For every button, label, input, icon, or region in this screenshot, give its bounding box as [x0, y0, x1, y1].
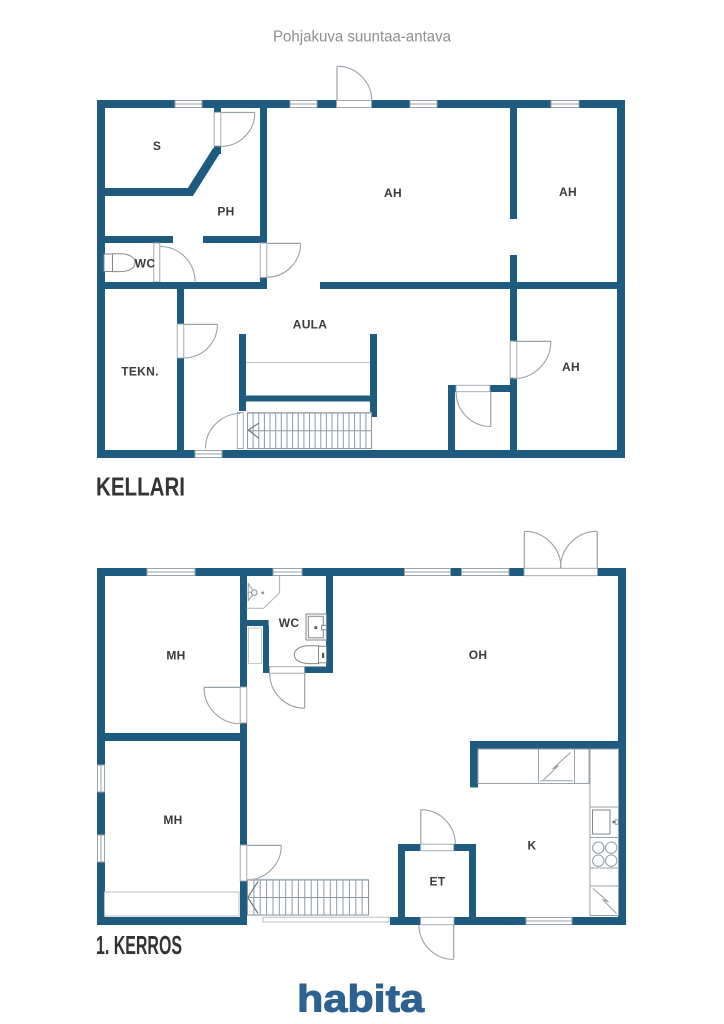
svg-text:WC: WC: [135, 257, 156, 271]
svg-text:KELLARI: KELLARI: [96, 472, 185, 502]
svg-text:AH: AH: [559, 185, 577, 199]
svg-text:Pohjakuva suuntaa-antava: Pohjakuva suuntaa-antava: [273, 29, 451, 46]
svg-text:AH: AH: [384, 186, 402, 200]
svg-text:AULA: AULA: [293, 318, 328, 332]
svg-text:OH: OH: [469, 648, 488, 662]
svg-text:S: S: [153, 139, 161, 153]
svg-text:MH: MH: [166, 649, 185, 663]
svg-text:TEKN.: TEKN.: [121, 365, 159, 379]
svg-text:WC: WC: [279, 616, 300, 630]
svg-text:MH: MH: [163, 813, 182, 827]
svg-text:PH: PH: [217, 205, 234, 219]
svg-text:AH: AH: [562, 360, 580, 374]
svg-text:K: K: [528, 839, 537, 853]
svg-text:1. KERROS: 1. KERROS: [96, 930, 182, 960]
svg-text:habita: habita: [297, 979, 425, 1021]
svg-text:ET: ET: [430, 875, 446, 889]
